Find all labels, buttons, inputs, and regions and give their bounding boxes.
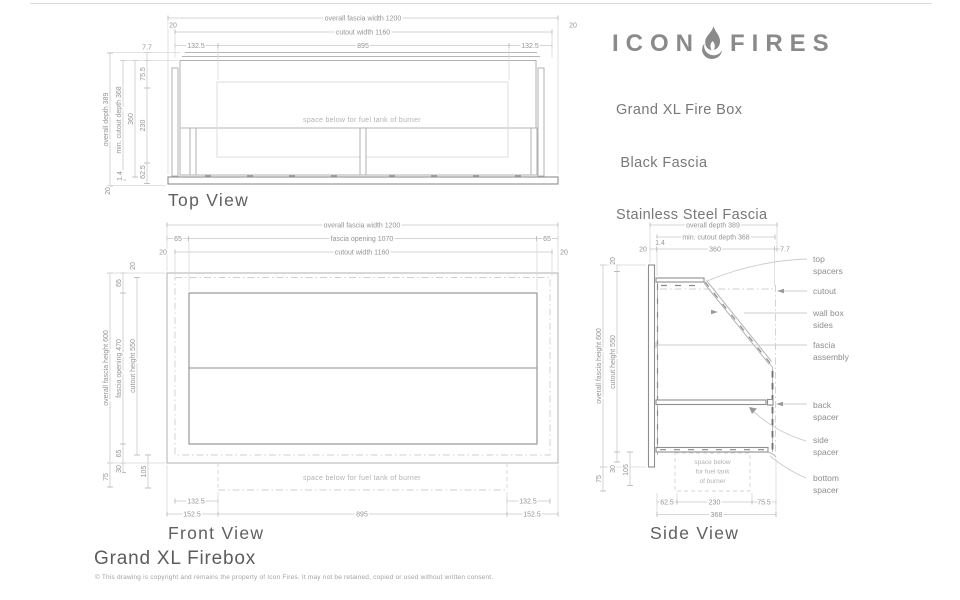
side-view-note-line3: of burner bbox=[699, 478, 726, 485]
callout-cutout: cutout bbox=[813, 286, 837, 296]
top-view-dim-seg-left: 132.5 bbox=[187, 43, 205, 50]
brand-logo: ICON FIRES bbox=[612, 26, 836, 62]
side-view-label: Side View bbox=[650, 523, 739, 543]
side-view-callouts: top spacers cutout wall box sides fascia… bbox=[812, 254, 850, 495]
brand-word-fires: FIRES bbox=[730, 30, 836, 58]
top-view-dim-end-left: 20 bbox=[169, 23, 177, 30]
front-view-dim-20-right: 20 bbox=[560, 250, 568, 257]
side-view: overall depth 389 min. cutout depth 368 … bbox=[596, 223, 850, 544]
front-view: overall fascia width 1200 65 fascia open… bbox=[103, 223, 568, 544]
top-view: overall fascia width 1200 20 20 cutout w… bbox=[103, 16, 577, 211]
front-view-dim-65-bottom: 65 bbox=[116, 450, 123, 458]
top-view-dim-min-cutout-depth: min. cutout depth 368 bbox=[116, 86, 123, 153]
front-view-dim-opening-width: fascia opening 1070 bbox=[331, 236, 394, 243]
product-line-3: Stainless Steel Fascia bbox=[616, 207, 767, 225]
front-view-dims-bottom: 132.5 132.5 152.5 895 152.5 bbox=[167, 465, 558, 519]
top-view-dim-1-4: 1.4 bbox=[117, 171, 124, 181]
drawing-title: Grand XL Firebox bbox=[94, 548, 256, 570]
side-view-dim-62-5: 62.5 bbox=[660, 500, 674, 507]
front-view-dim-152-right: 152.5 bbox=[523, 512, 541, 519]
callout-side-spacer-line2: spacer bbox=[813, 447, 839, 457]
front-view-dim-opening-height: fascia opening 470 bbox=[116, 339, 123, 398]
product-line-2: Black Fascia bbox=[616, 155, 767, 173]
callout-bottom-spacer-line2: spacer bbox=[813, 485, 839, 495]
top-view-dim-overall-depth: overall depth 389 bbox=[103, 93, 110, 147]
callout-fascia-line2: assembly bbox=[813, 352, 850, 362]
top-view-note: space below for fuel tank of burner bbox=[303, 117, 421, 124]
copyright-note: © This drawing is copyright and remains … bbox=[95, 574, 493, 581]
front-view-dim-895: 895 bbox=[356, 512, 368, 519]
top-view-dim-75-5: 75.5 bbox=[140, 67, 147, 81]
callout-side-spacer-line1: side bbox=[813, 435, 829, 445]
brand-word-icon: ICON bbox=[612, 30, 700, 58]
top-view-dim-20: 20 bbox=[105, 187, 112, 195]
top-view-dim-seg-mid: 895 bbox=[357, 43, 369, 50]
top-view-dim-box-depth: 360 bbox=[128, 113, 135, 125]
side-view-dim-230: 230 bbox=[709, 500, 721, 507]
product-line-1: Grand XL Fire Box bbox=[616, 102, 767, 120]
front-view-dim-75: 75 bbox=[103, 473, 110, 481]
front-view-geometry bbox=[167, 273, 558, 490]
side-view-dim-75: 75 bbox=[596, 475, 603, 483]
side-view-note-line1: space below bbox=[694, 459, 730, 466]
side-view-dim-cutout-height: cutout height 550 bbox=[610, 335, 617, 389]
top-view-dim-62-5: 62.5 bbox=[140, 165, 147, 179]
callout-wall-box-line1: wall box bbox=[812, 308, 844, 318]
top-view-dim-cutout-width: cutout width 1160 bbox=[336, 30, 390, 37]
side-view-dim-368: 368 bbox=[711, 512, 723, 519]
top-view-dim-overall-width: overall fascia width 1200 bbox=[325, 16, 402, 23]
callout-wall-box-line2: sides bbox=[813, 320, 833, 330]
front-view-note: space below for fuel tank of burner bbox=[303, 475, 421, 482]
side-view-dim-7-7: 7.7 bbox=[780, 247, 790, 254]
front-view-dim-152-left: 152.5 bbox=[183, 512, 201, 519]
callout-fascia-line1: fascia bbox=[813, 340, 835, 350]
side-view-leaders bbox=[656, 259, 807, 478]
callout-top-spacers-line1: top bbox=[813, 254, 825, 264]
top-view-dim-end-right: 20 bbox=[569, 23, 577, 30]
callout-back-spacer-line1: back bbox=[813, 400, 832, 410]
top-view-dim-230: 230 bbox=[140, 120, 147, 132]
side-view-dim-overall-height: overall fascia height 600 bbox=[596, 328, 603, 404]
top-view-dim-7-7: 7.7 bbox=[142, 45, 152, 52]
flame-icon bbox=[699, 26, 726, 62]
side-view-geometry bbox=[649, 265, 777, 491]
front-view-dim-132-right: 132.5 bbox=[519, 499, 537, 506]
side-view-dim-105: 105 bbox=[623, 464, 630, 476]
front-view-dim-65-right: 65 bbox=[543, 236, 551, 243]
side-view-note-line2: for fuel tank bbox=[696, 469, 731, 476]
side-view-dims-vertical: overall fascia height 600 cutout height … bbox=[596, 257, 646, 491]
front-view-dim-overall-height: overall fascia height 600 bbox=[103, 330, 110, 406]
front-view-dim-20-top: 20 bbox=[130, 262, 137, 270]
drawing-sheet: overall fascia width 1200 20 20 cutout w… bbox=[0, 0, 960, 600]
callout-bottom-spacer-line1: bottom bbox=[813, 473, 839, 483]
front-view-dim-cutout-width: cutout width 1160 bbox=[335, 250, 389, 257]
callout-back-spacer-line2: spacer bbox=[813, 412, 839, 422]
top-view-dim-seg-right: 132.5 bbox=[521, 43, 539, 50]
front-view-dim-65-left: 65 bbox=[174, 236, 182, 243]
callout-top-spacers-line2: spacers bbox=[813, 266, 843, 276]
front-view-dim-30: 30 bbox=[116, 465, 123, 473]
front-view-dim-cutout-height: cutout height 550 bbox=[130, 339, 137, 393]
top-view-dims-vertical: overall depth 389 min. cutout depth 368 … bbox=[103, 45, 180, 195]
front-view-dim-132-left: 132.5 bbox=[187, 499, 205, 506]
product-description: Grand XL Fire Box Black Fascia Stainless… bbox=[616, 67, 767, 260]
technical-drawing: overall fascia width 1200 20 20 cutout w… bbox=[0, 0, 960, 600]
front-view-dim-overall-width: overall fascia width 1200 bbox=[324, 223, 401, 230]
side-view-dim-75-5: 75.5 bbox=[757, 500, 771, 507]
front-view-dim-65-top: 65 bbox=[116, 279, 123, 287]
front-view-dim-20-left: 20 bbox=[159, 250, 167, 257]
front-view-dim-105: 105 bbox=[141, 466, 148, 478]
side-view-dim-30: 30 bbox=[610, 465, 617, 473]
front-view-dims-vertical: overall fascia height 600 65 fascia open… bbox=[103, 262, 165, 488]
top-view-label: Top View bbox=[168, 190, 249, 210]
front-view-label: Front View bbox=[168, 523, 264, 543]
